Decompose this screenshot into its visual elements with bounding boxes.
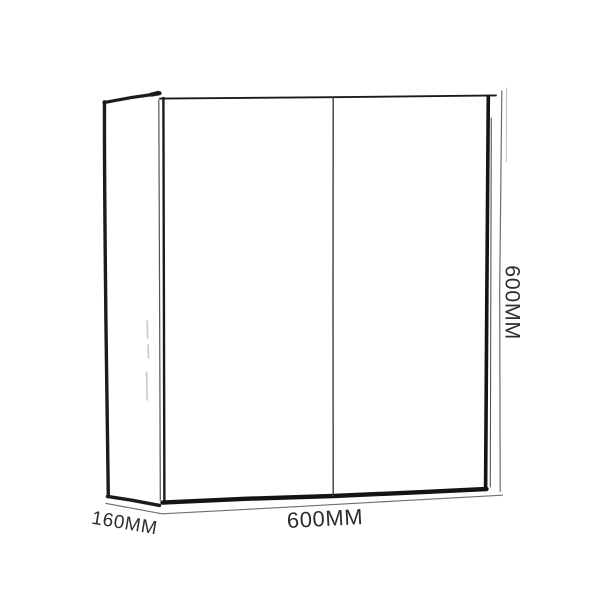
front-left-edge-inner-line bbox=[159, 100, 161, 501]
front-top-edge bbox=[160, 95, 496, 98]
dimension-lines bbox=[106, 88, 507, 514]
cabinet-dimension-drawing: 600MM 600MM 160MM bbox=[0, 0, 600, 600]
height-dimension-label: 600MM bbox=[501, 265, 525, 340]
diagram-canvas: 600MM 600MM 160MM bbox=[0, 0, 600, 600]
side-panel bbox=[104, 92, 160, 505]
front-bottom-edge bbox=[163, 489, 487, 503]
front-face bbox=[159, 95, 496, 502]
side-panel-bottom-edge bbox=[108, 496, 160, 505]
side-panel-left-edge bbox=[104, 102, 108, 497]
side-panel-top-corner-blob bbox=[152, 93, 160, 94]
front-right-edge-sketch-line bbox=[490, 118, 491, 487]
depth-dimension-label: 160MM bbox=[90, 508, 159, 540]
width-dimension-label: 600MM bbox=[286, 504, 364, 533]
front-right-edge bbox=[486, 97, 489, 488]
side-panel-sketch-smudges bbox=[147, 321, 149, 400]
front-left-edge bbox=[163, 98, 164, 502]
